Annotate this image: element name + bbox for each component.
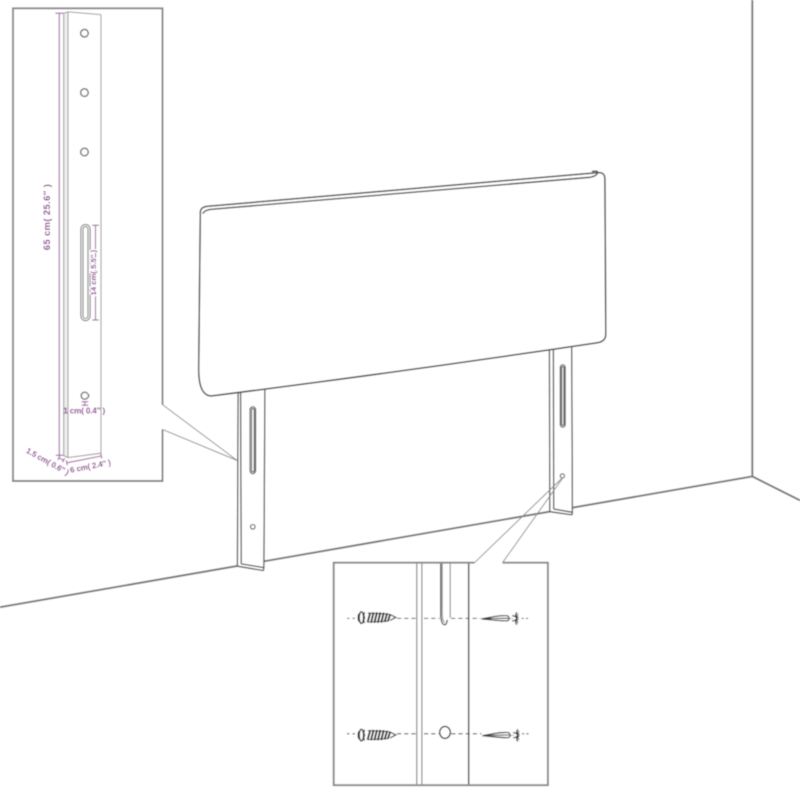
svg-text:1 cm( 0.4″ ): 1 cm( 0.4″ ) <box>63 407 105 416</box>
svg-text:65 cm( 25.6″ ): 65 cm( 25.6″ ) <box>42 184 52 251</box>
svg-text:14 cm( 5.5″ ): 14 cm( 5.5″ ) <box>89 249 98 295</box>
